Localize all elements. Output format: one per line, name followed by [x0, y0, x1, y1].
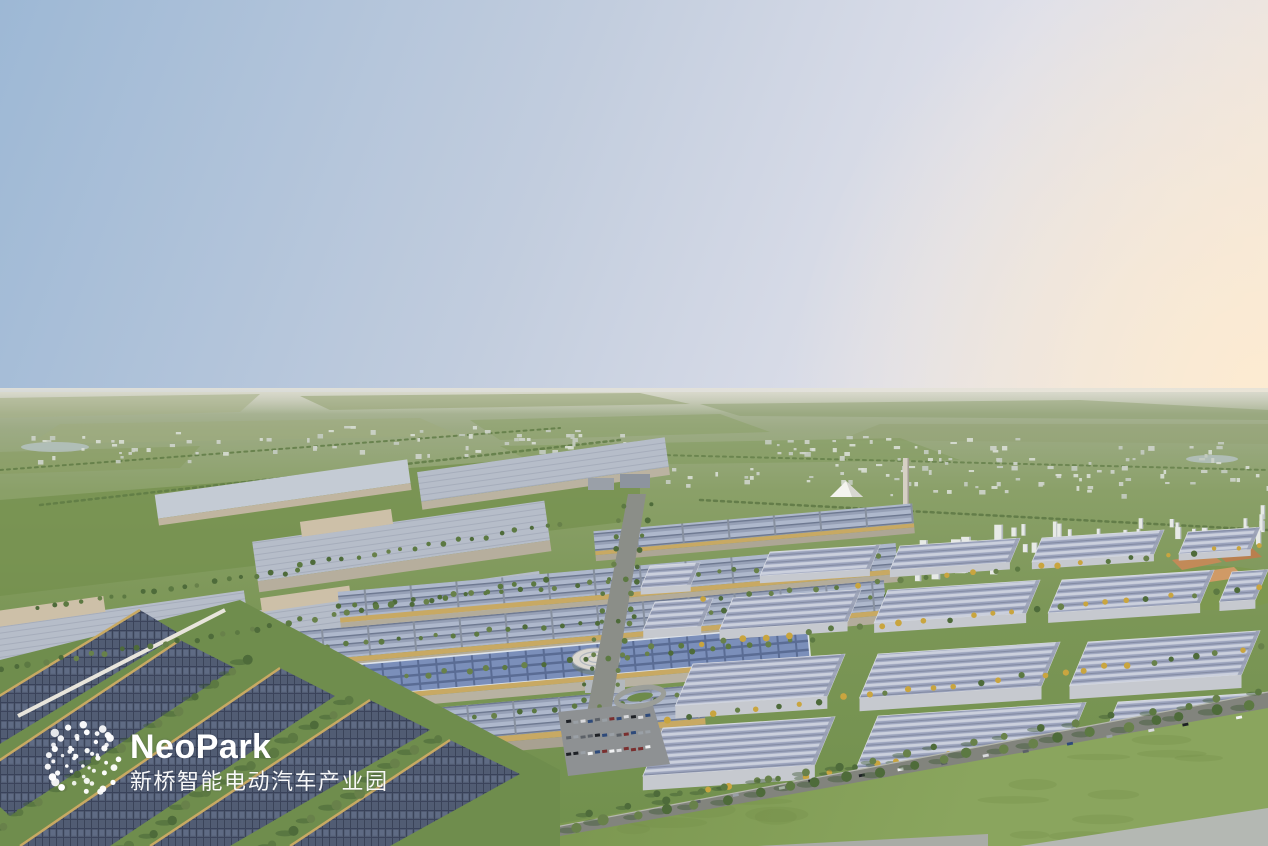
car [573, 735, 578, 739]
distant-building [933, 490, 938, 493]
tree [470, 537, 474, 541]
tree [79, 599, 83, 603]
tree [485, 590, 490, 595]
tree [689, 800, 698, 809]
tree [250, 627, 255, 632]
tree [484, 535, 489, 540]
tree [947, 618, 953, 624]
distant-building [420, 430, 424, 433]
tree [518, 587, 523, 592]
tree [897, 577, 903, 583]
tree [557, 522, 562, 527]
tree [429, 598, 434, 603]
distant-building [1246, 466, 1250, 469]
tree [1244, 700, 1254, 710]
tree [689, 648, 695, 654]
lawn-patch [1088, 790, 1139, 800]
tree [483, 665, 489, 671]
distant-building [527, 438, 531, 441]
tree [147, 643, 153, 649]
tree [434, 735, 442, 743]
distant-building [1029, 458, 1035, 461]
tree [220, 631, 225, 636]
distant-building [849, 444, 855, 446]
distant-building [147, 448, 151, 452]
tree [895, 620, 902, 627]
tree [1102, 599, 1108, 605]
tree [456, 537, 461, 542]
tree [0, 823, 7, 831]
car [566, 752, 571, 756]
tree [288, 826, 298, 836]
distant-building [807, 480, 811, 482]
distant-building [351, 426, 356, 429]
lawn-patch [1132, 735, 1192, 745]
tree [191, 693, 198, 700]
car [566, 736, 571, 740]
tree [903, 749, 911, 757]
distant-building [1199, 458, 1205, 460]
distant-building [945, 462, 948, 465]
car [595, 750, 600, 754]
tree [552, 586, 557, 591]
tree [1152, 660, 1158, 666]
tree [467, 668, 473, 674]
tree [286, 620, 292, 626]
tree [295, 568, 300, 573]
tree [616, 518, 621, 523]
distant-building [82, 436, 85, 439]
tree [1234, 587, 1240, 593]
tree [756, 788, 766, 798]
tree [1019, 672, 1025, 678]
distant-building [1073, 474, 1078, 477]
tree [34, 798, 43, 807]
tree [246, 761, 255, 770]
tree [310, 721, 319, 730]
tree [940, 755, 949, 764]
lawn-patch [1010, 831, 1049, 839]
distant-building [997, 458, 1003, 462]
tree [307, 815, 315, 823]
tree [587, 580, 592, 585]
lawn-patch [1067, 754, 1130, 760]
tree [339, 557, 344, 562]
car [624, 747, 629, 751]
distant-building [1201, 470, 1207, 473]
tree [151, 588, 157, 594]
tree [410, 745, 420, 755]
distant-building [1216, 462, 1221, 464]
car [602, 718, 607, 722]
tree [699, 642, 704, 647]
distant-building [1133, 458, 1136, 460]
tree [616, 683, 620, 687]
distant-building [894, 446, 900, 449]
distant-building [1141, 450, 1145, 455]
tree [709, 610, 714, 615]
tree [543, 577, 549, 583]
car [588, 720, 593, 724]
tree [1078, 560, 1083, 565]
tree [990, 611, 995, 616]
distant-building [1211, 458, 1214, 463]
tree [725, 644, 731, 650]
distant-building [1148, 446, 1154, 451]
distant-building [997, 482, 1001, 486]
tree [1185, 703, 1192, 710]
tree [605, 656, 611, 662]
tree [530, 526, 534, 530]
distant-building [1216, 446, 1222, 449]
tree [437, 595, 442, 600]
distant-building [120, 456, 123, 459]
tree [332, 612, 337, 617]
distant-building [1056, 474, 1062, 476]
distant-building [861, 468, 867, 473]
lawn-patch [1009, 779, 1057, 790]
lawn-patch [1072, 814, 1134, 824]
tree [468, 590, 474, 596]
distant-building [1087, 474, 1091, 478]
tree [283, 571, 288, 576]
tree [1193, 653, 1200, 660]
tree [472, 715, 477, 720]
tree [645, 517, 651, 523]
distant-building [914, 482, 918, 486]
car [609, 733, 614, 737]
tree [754, 568, 759, 573]
tree [632, 614, 637, 619]
tree [491, 713, 497, 719]
distant-building [979, 490, 985, 495]
lawn-patch [977, 796, 1049, 804]
tree [662, 796, 670, 804]
tree [411, 597, 416, 602]
tree [1124, 722, 1134, 732]
tree [786, 633, 793, 640]
tree [813, 587, 819, 593]
tree [620, 652, 625, 657]
tower-shade [1264, 505, 1265, 519]
aerial-render-stage: NeoPark 新桥智能电动汽车产业园 [0, 0, 1268, 846]
tree [195, 583, 200, 588]
tree [1169, 656, 1174, 661]
tree [841, 771, 852, 782]
tree [397, 637, 401, 641]
car [645, 714, 650, 718]
distant-building [1160, 474, 1164, 479]
distant-building [886, 438, 891, 441]
tree [52, 603, 57, 608]
tower-shade [1263, 514, 1264, 530]
tree [541, 662, 546, 667]
tree [134, 645, 140, 651]
tree [352, 602, 357, 607]
tower-shade [1016, 528, 1017, 537]
tree [91, 756, 100, 765]
tree [357, 555, 361, 559]
distant-building [929, 470, 932, 475]
tree [600, 620, 604, 624]
tree [616, 668, 621, 673]
distant-building [1015, 438, 1020, 440]
distant-building [1077, 486, 1080, 491]
tree [653, 790, 660, 797]
tree [498, 584, 504, 590]
distant-building [805, 440, 810, 444]
tree [24, 661, 31, 668]
distant-building [360, 450, 365, 455]
tree [552, 707, 558, 713]
distant-building [217, 440, 221, 444]
tree [1237, 546, 1241, 550]
tree [623, 576, 629, 582]
tree [769, 591, 774, 596]
tree [905, 686, 911, 692]
tree [1108, 712, 1115, 719]
tree [102, 651, 108, 657]
distant-building [990, 446, 996, 451]
tree [373, 603, 379, 609]
distant-building [750, 476, 754, 480]
tree [961, 748, 971, 758]
tree [662, 804, 672, 814]
tree [326, 557, 331, 562]
tree [419, 636, 423, 640]
tree [267, 623, 272, 628]
distant-building [1011, 466, 1017, 470]
parking-surface [558, 702, 670, 776]
distant-building [1221, 470, 1227, 473]
tree [637, 547, 643, 553]
tree [1054, 563, 1060, 569]
distant-building [1071, 466, 1077, 471]
tree [698, 788, 705, 795]
tree [227, 576, 232, 581]
tree [567, 657, 573, 663]
tree [1015, 566, 1020, 571]
tree [379, 639, 385, 645]
tree [971, 612, 977, 618]
distant-building [410, 434, 414, 436]
tree [806, 629, 812, 635]
tree [167, 816, 176, 825]
distant-building [991, 486, 997, 489]
tree [857, 623, 863, 629]
tree [288, 733, 298, 743]
tree [746, 591, 752, 597]
tree [696, 572, 701, 577]
distant-building [890, 494, 893, 496]
tree [668, 650, 673, 655]
tree [731, 567, 736, 572]
tree [388, 601, 395, 608]
distant-building [572, 442, 575, 447]
tree [1258, 643, 1264, 649]
gate-building [620, 474, 650, 488]
tree [268, 570, 274, 576]
distant-building [975, 486, 978, 488]
tree [678, 643, 684, 649]
tree [753, 706, 758, 711]
distant-building [532, 442, 536, 444]
distant-building [176, 432, 181, 434]
tree [776, 704, 782, 710]
tree [675, 693, 680, 698]
tree [575, 583, 580, 588]
car [645, 730, 650, 734]
distant-building [1088, 486, 1094, 489]
distant-building [318, 434, 324, 438]
tree [1037, 724, 1045, 732]
distant-building [465, 454, 469, 457]
tree [149, 830, 157, 838]
distant-building [947, 490, 952, 494]
distant-building [788, 440, 794, 443]
tree [1212, 704, 1223, 715]
tree [517, 709, 523, 715]
distant-building [1256, 474, 1260, 477]
distant-building [313, 446, 317, 451]
tree [130, 734, 138, 742]
tree [787, 587, 793, 593]
car [631, 748, 636, 752]
distant-building [260, 438, 263, 441]
tree [182, 584, 187, 589]
tree [970, 569, 976, 575]
tree [35, 606, 39, 610]
distant-building [31, 436, 35, 441]
distant-building [1038, 482, 1042, 487]
tree [1072, 719, 1080, 727]
distant-building [119, 452, 122, 454]
tree [1106, 559, 1111, 564]
tree [181, 800, 190, 809]
tree [168, 586, 174, 592]
distant-lake [21, 442, 89, 452]
industrial-park-aerial-scene [0, 0, 1268, 846]
distant-building [809, 476, 813, 478]
tree [474, 632, 479, 637]
tree [710, 710, 717, 717]
tree [705, 787, 711, 793]
tree [116, 744, 125, 753]
tree [269, 748, 280, 759]
tree [433, 633, 437, 637]
distant-building [744, 480, 750, 484]
distant-building [844, 452, 850, 456]
tree [700, 596, 706, 602]
tree [443, 595, 449, 601]
distant-building [505, 442, 509, 445]
distant-building [672, 468, 676, 471]
tree [1213, 588, 1220, 595]
tree [229, 668, 237, 676]
distant-building [475, 450, 481, 453]
distant-building [950, 442, 956, 444]
tree [1212, 546, 1216, 550]
tree [451, 633, 456, 638]
car [624, 715, 629, 719]
tree [611, 562, 616, 567]
tree [359, 608, 364, 613]
tree [1143, 596, 1149, 602]
tree [344, 610, 350, 616]
tree [710, 646, 715, 651]
tree [875, 768, 885, 778]
distant-building [898, 458, 901, 461]
tree [63, 601, 69, 607]
tower-shade [1173, 519, 1174, 527]
tree [583, 657, 588, 662]
distant-building [1208, 450, 1212, 455]
tree [163, 641, 169, 647]
tree [195, 638, 200, 643]
tree [686, 714, 692, 720]
distant-building [112, 444, 117, 447]
tree [1212, 650, 1218, 656]
tree [499, 590, 503, 594]
tree [345, 696, 354, 705]
tree [1257, 543, 1262, 548]
tree [747, 642, 753, 648]
tree [723, 795, 733, 805]
tree [364, 640, 369, 645]
distant-building [52, 456, 55, 460]
distant-building [566, 434, 570, 437]
distant-building [894, 478, 899, 480]
tree [720, 638, 726, 644]
distant-building [997, 466, 1003, 468]
distant-building [924, 450, 929, 454]
tree [640, 533, 644, 537]
tree [235, 630, 240, 635]
distant-building [267, 438, 272, 442]
distant-building [273, 450, 278, 454]
tree [1191, 551, 1197, 557]
tree [372, 552, 377, 557]
tree [924, 575, 929, 580]
tower-shade [1027, 544, 1028, 552]
tree [522, 624, 527, 629]
tree [210, 680, 219, 689]
tree [212, 578, 218, 584]
tree [122, 595, 126, 599]
tree [1168, 593, 1173, 598]
tree [802, 768, 810, 776]
tree [775, 776, 781, 782]
tree [828, 625, 834, 631]
tree [786, 781, 795, 790]
distant-building [915, 446, 918, 449]
tree [995, 677, 1001, 683]
distant-building [1047, 466, 1053, 469]
car [588, 752, 593, 756]
tree [1063, 670, 1069, 676]
tree [625, 655, 631, 661]
distant-building [812, 448, 816, 451]
distant-building [394, 442, 399, 445]
tree [74, 771, 81, 778]
tree [331, 800, 341, 810]
tower-shade [1260, 529, 1261, 545]
distant-building [371, 430, 376, 435]
distant-building [223, 452, 229, 456]
tree [521, 662, 527, 668]
tree [43, 659, 49, 665]
distant-building [1237, 478, 1240, 482]
